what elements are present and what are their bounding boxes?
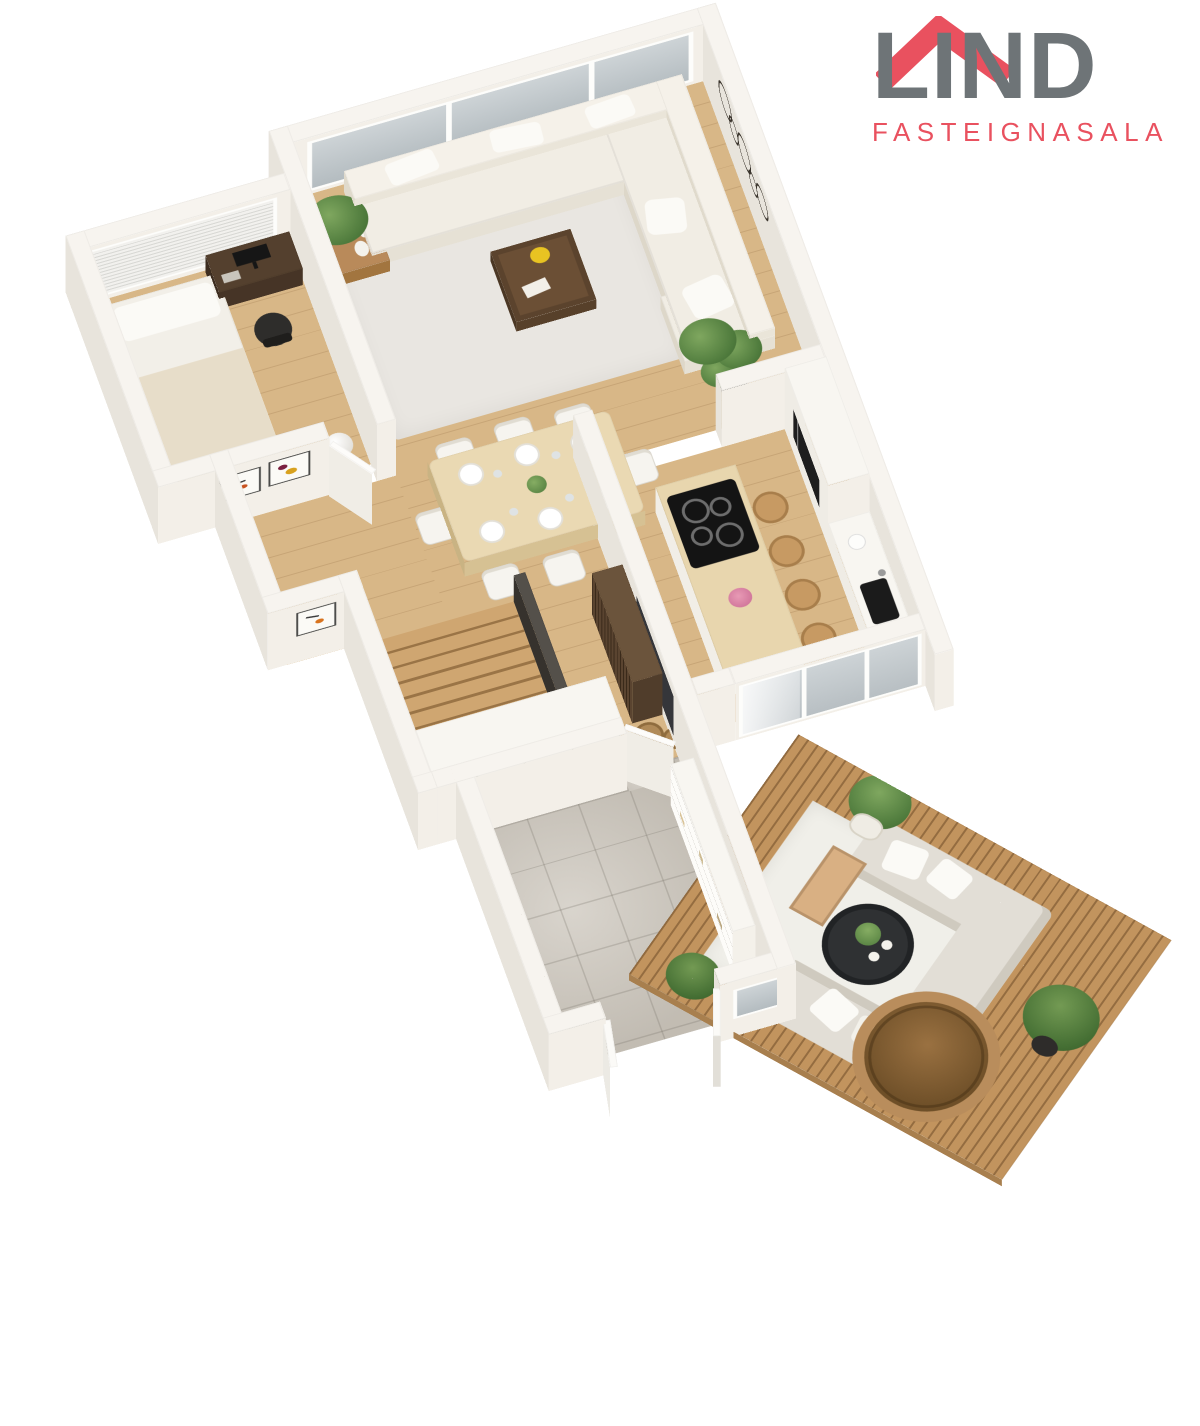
surface bbox=[252, 261, 258, 269]
floor-plan bbox=[50, 0, 1200, 1426]
surface bbox=[534, 504, 567, 533]
surface bbox=[377, 419, 396, 481]
surface bbox=[550, 450, 561, 460]
surface bbox=[221, 270, 241, 283]
surface bbox=[508, 507, 519, 517]
front-door-right bbox=[713, 1039, 721, 1087]
surface bbox=[935, 649, 954, 711]
surface bbox=[865, 648, 870, 701]
surface bbox=[802, 666, 807, 719]
surface bbox=[680, 811, 684, 827]
table-centerpiece bbox=[524, 473, 549, 495]
wall-entrance-south-a bbox=[543, 1058, 606, 1091]
surface bbox=[564, 493, 575, 503]
kitchen-sliding-door bbox=[729, 669, 925, 740]
brand-name: LIND bbox=[872, 26, 1172, 107]
art-frame bbox=[296, 602, 336, 637]
brand-tagline: FASTEIGNASALA bbox=[872, 117, 1172, 148]
surface bbox=[286, 467, 297, 476]
pink-flowers bbox=[725, 585, 755, 610]
deck-plant bbox=[1009, 972, 1114, 1064]
surface bbox=[797, 420, 798, 451]
surface bbox=[476, 517, 509, 546]
sheer-curtain bbox=[743, 669, 800, 735]
surface bbox=[522, 277, 552, 298]
yellow-flowers bbox=[528, 245, 553, 266]
faucet bbox=[877, 568, 887, 577]
surface bbox=[306, 615, 320, 619]
surface bbox=[644, 197, 688, 236]
surface bbox=[846, 532, 869, 552]
surface bbox=[315, 618, 324, 625]
brand-logo: LIND FASTEIGNASALA bbox=[872, 16, 1172, 148]
kitchen-sink bbox=[859, 577, 900, 625]
surface bbox=[713, 988, 721, 1036]
surface bbox=[492, 469, 503, 479]
surface bbox=[632, 674, 662, 724]
front-door-left bbox=[603, 1070, 618, 1118]
surface bbox=[713, 1036, 721, 1087]
surface bbox=[455, 460, 488, 489]
art-frame bbox=[268, 450, 310, 486]
surface bbox=[511, 440, 544, 469]
